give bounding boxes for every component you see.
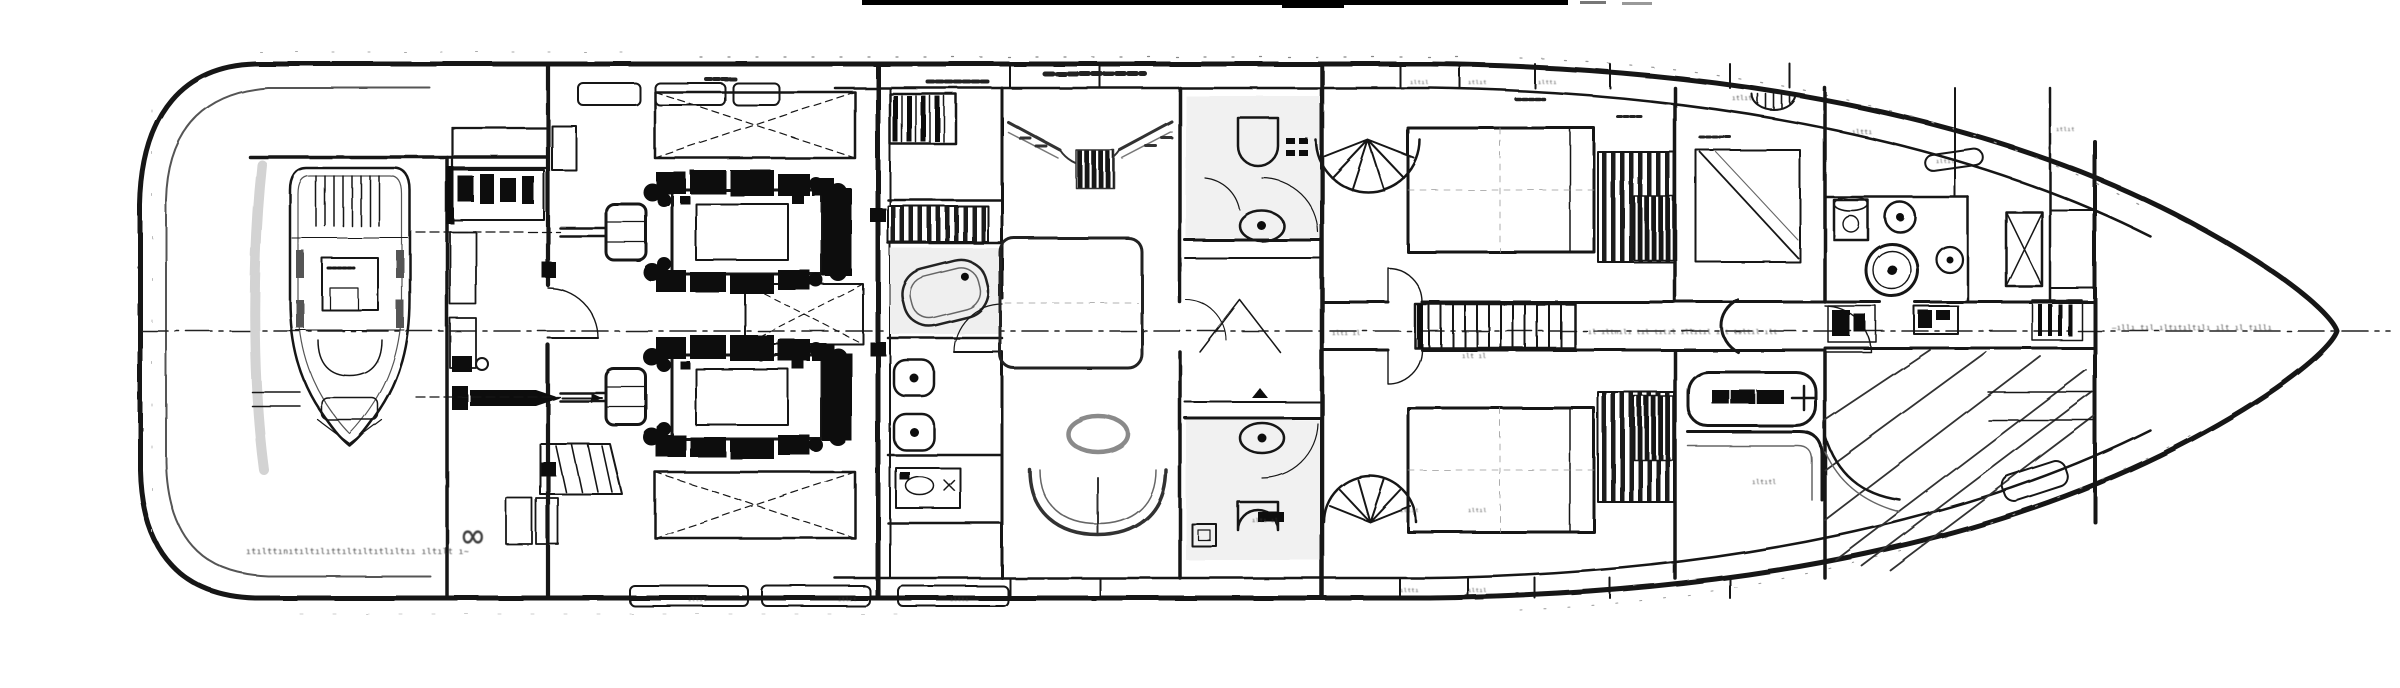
master-ensuite-bottom <box>1186 388 1320 560</box>
guest-cabin-top <box>1316 128 1674 262</box>
illegible-annotation: ılttı <box>1400 588 1419 594</box>
illegible-annotation: ıltı ıl <box>1332 330 1361 337</box>
fan-chair-top <box>1316 140 1420 192</box>
master-ensuite-top <box>1186 96 1320 241</box>
fuel-tank-aft-bottom <box>655 472 855 538</box>
bow-storage <box>1825 350 2094 570</box>
corridor <box>1388 268 1738 384</box>
master-cabin <box>1000 122 1172 535</box>
engine-port <box>560 170 852 294</box>
vanity-sink <box>896 468 960 508</box>
stairs-aft <box>890 94 956 144</box>
valve-manifold-icons <box>446 166 534 224</box>
illegible-annotation: ıltıl <box>1936 159 1955 165</box>
toilet-icons <box>894 360 934 450</box>
wardrobe-hatch <box>888 206 988 242</box>
illegible-annotation: ıltıl <box>1468 508 1487 514</box>
illegible-annotation: ılt ıl <box>1462 353 1487 360</box>
illegible-annotation: ıltıl <box>688 597 707 603</box>
headboard-console <box>1008 122 1172 188</box>
scanned-plan-page: ıtılttınıtıltılıttıltıltıtlıltıı ıltılt … <box>0 0 2400 688</box>
utility-fixtures <box>1828 300 2082 342</box>
illegible-annotation: ıtlıt <box>1468 80 1487 86</box>
lazarette-technical-space <box>446 126 622 544</box>
illegible-annotation: ıtlıt <box>838 597 857 603</box>
infinity-scribble: ∞ <box>462 516 484 557</box>
illegible-annotation: ıtılttınıtıltılıttıltıltıtlıltıı ıltılt … <box>246 547 469 556</box>
master-lobby-doors <box>1186 300 1280 352</box>
illegible-annotation: ılttı <box>1538 80 1557 86</box>
laundry-room <box>1825 148 2082 352</box>
guest-cabin-bottom <box>1324 392 1674 532</box>
rug-oval <box>1068 416 1128 452</box>
master-sofa <box>1030 470 1166 535</box>
mess-bench <box>1688 432 1822 500</box>
inner-hull-bottom <box>835 430 2150 578</box>
illegible-annotation: ıtlıt <box>2056 127 2075 133</box>
deck-plan-drawing: ıtılttınıtıltılıttıltıltıtlıltıı ıltılt … <box>0 0 2400 688</box>
transom-inner-line <box>166 88 430 576</box>
illegible-annotation: ıl ıltnılı tıl tıtıl ıllıtıl ılt tıltıl … <box>1588 328 1778 336</box>
fan-chair-bottom <box>1324 476 1416 522</box>
illegible-annotation: ıltı ıl <box>1252 518 1279 524</box>
engine-room <box>416 92 886 538</box>
tv-fan-unit <box>1076 150 1114 188</box>
tender-icon <box>252 168 410 446</box>
fuel-tank-aft-top <box>655 92 855 158</box>
boiler-cylinder <box>1834 200 1868 240</box>
engine-starboard <box>560 335 852 459</box>
illegible-annotation: ıtlıt <box>1732 95 1753 102</box>
illegible-annotation: ılttı <box>950 597 969 603</box>
main-staircase <box>1415 304 1575 348</box>
illegible-annotation: ıltıl <box>1410 80 1429 86</box>
illegible-annotation: ıltıl <box>1468 588 1487 594</box>
master-bath-column <box>888 94 1002 508</box>
illegible-annotation: ıtlıt <box>1400 508 1419 514</box>
scan-noise-top <box>862 0 1652 8</box>
tender-garage <box>252 165 410 470</box>
illegible-annotation: —ıllı tıl ıltıtıltılı ılt ıl tıllı <box>2112 324 2272 332</box>
illegible-annotation: ılttı <box>1852 129 1873 136</box>
illegible-annotation: ıltıtl <box>1752 479 1777 486</box>
